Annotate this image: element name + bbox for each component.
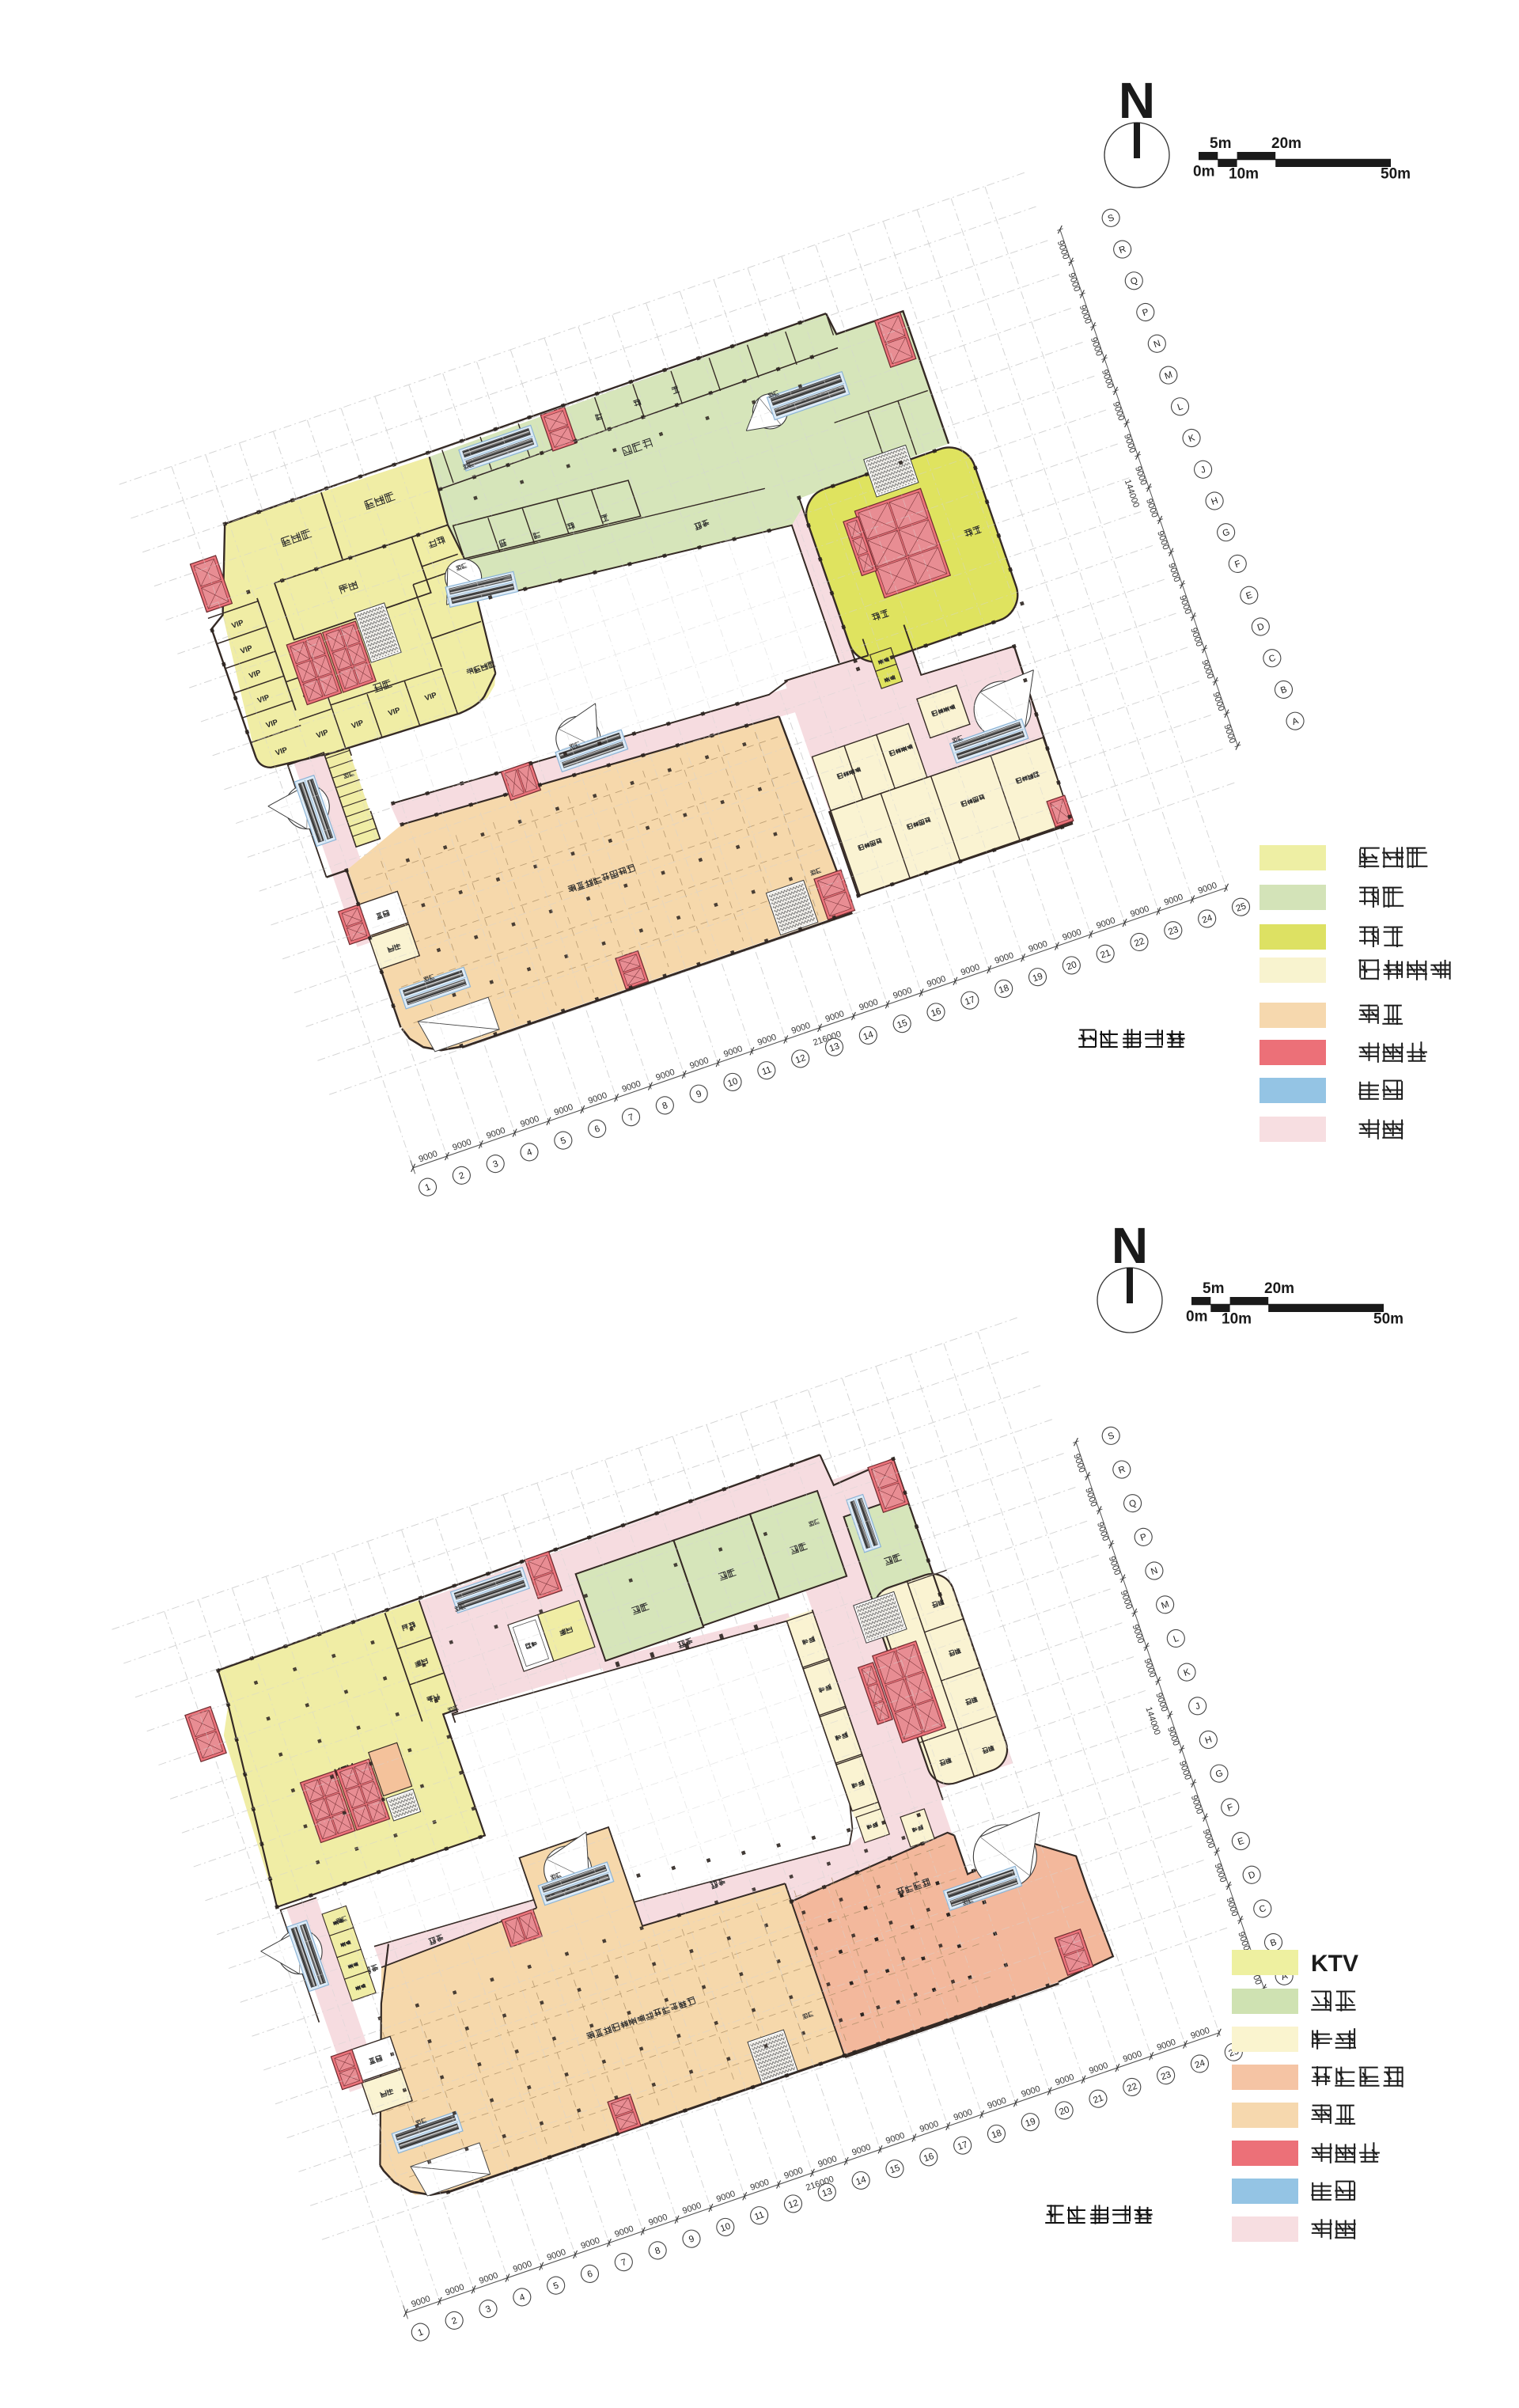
svg-text:KTV: KTV [1311,1951,1358,1977]
svg-text:50m: 50m [1381,166,1411,183]
svg-text:0m: 0m [1193,164,1214,180]
svg-text:10m: 10m [1222,1311,1252,1328]
svg-text:50m: 50m [1373,1311,1403,1328]
svg-text:20m: 20m [1264,1280,1294,1297]
svg-text:0m: 0m [1186,1309,1207,1325]
svg-text:5m: 5m [1203,1280,1224,1297]
svg-text:20m: 20m [1271,135,1301,152]
svg-text:5m: 5m [1210,135,1231,152]
svg-text:N: N [1112,1217,1148,1274]
svg-text:10m: 10m [1229,166,1259,183]
svg-text:N: N [1119,72,1155,129]
